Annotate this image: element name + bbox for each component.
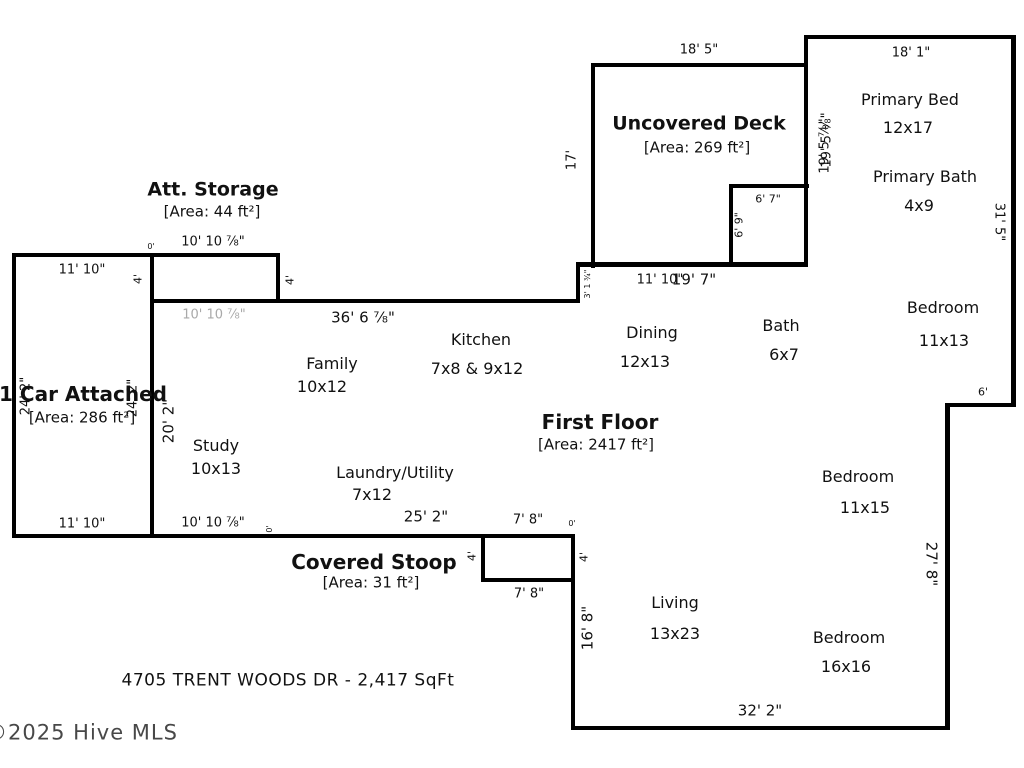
floor-area: [Area: 2417 ft²] [538,438,654,453]
wall-suite-top [804,35,1015,39]
room-primary-bed: Primary Bed [861,92,959,108]
room-bedroom2-size: 11x15 [840,500,890,516]
wall-bottom-left [12,534,575,538]
dim-step-upper: 3' 1 ¾" [584,270,592,299]
wall-deck-left [591,63,595,268]
dim-stoop-span: 25' 2" [404,510,448,525]
dim-zero-storage: 0' [147,243,154,251]
dim-main-top: 36' 6 ⅞" [331,311,395,326]
dim-under-deck-b: 19' 7" [672,273,716,288]
room-bedroom3: Bedroom [813,630,885,646]
room-bedroom2: Bedroom [822,469,894,485]
floor-title: First Floor [542,412,659,432]
wall-storage-top [150,253,280,257]
room-laundry-size: 7x12 [352,487,392,503]
deck-area: [Area: 269 ft²] [644,141,750,156]
room-family-size: 10x12 [297,379,347,395]
floor-plan: Uncovered Deck [Area: 269 ft²] Att. Stor… [0,0,1024,768]
wall-garage-top [12,253,156,257]
dim-storage-top: 10' 10 ⅞" [181,236,245,249]
dim-storage-bottom: 10' 10 ⅞" [182,309,246,322]
dim-stoop-hr: 4' [579,552,590,562]
dim-right-upper: 31' 5" [993,203,1006,242]
wall-deck-top [591,63,808,67]
address-line: 4705 TRENT WOODS DR - 2,417 SqFt [122,673,455,690]
room-study-size: 10x13 [191,461,241,477]
dim-deck-left: 17' [566,150,579,170]
dim-stoop-hl: 4' [467,551,478,561]
wall-storage-right [276,253,280,303]
room-living-size: 13x23 [650,626,700,642]
stoop-title: Covered Stoop [291,552,457,572]
room-bedroom3-size: 16x16 [821,659,871,675]
wall-right-lower [945,403,950,730]
room-primary-bath-size: 4x9 [904,198,934,214]
dim-garage-left: 24' 2" [20,377,33,416]
wall-right-upper [1011,35,1016,407]
room-dining-size: 12x13 [620,354,670,370]
dim-zero-bottom: 0' [266,525,274,532]
dim-right-lower: 27' 8" [924,542,939,586]
wall-living-left [571,534,575,730]
room-primary-bath: Primary Bath [873,169,977,185]
room-bedroom1-size: 11x13 [919,333,969,349]
dim-study-bottom: 10' 10 ⅞" [181,517,245,530]
dim-deck-top: 18' 5" [680,44,719,57]
dim-zero-stoop: 0' [568,520,575,528]
dim-stoop-top: 7' 8" [513,514,543,527]
room-laundry: Laundry/Utility [336,465,454,481]
dim-living-left: 16' 8" [581,606,596,650]
wall-step-up [576,262,580,303]
wall-right-step [945,403,1016,407]
dim-garage-top: 11' 10" [59,264,106,277]
dim-right-step: 6' [978,387,988,398]
room-living: Living [651,595,699,611]
dim-storage-hl: 4' [133,274,144,284]
room-bath-size: 6x7 [769,347,799,363]
dim-suite-left-b: 19' 5 ⅛" [821,112,834,167]
dim-stoop-bottom: 7' 8" [514,588,544,601]
dim-suite-top: 18' 1" [892,47,931,60]
garage-area: [Area: 286 ft²] [29,411,135,426]
room-kitchen: Kitchen [451,332,511,348]
storage-title: Att. Storage [147,181,278,200]
room-dining: Dining [626,325,678,341]
stoop-area: [Area: 31 ft²] [323,576,420,591]
dim-study-left: 20' 2" [162,399,177,443]
deck-title: Uncovered Deck [612,115,786,134]
wall-stoop-left [481,534,485,582]
dim-garage-right: 24' 2" [127,379,140,418]
room-study: Study [193,438,239,454]
room-primary-bed-size: 12x17 [883,120,933,136]
room-bedroom1: Bedroom [907,300,979,316]
dim-bottom: 32' 2" [738,704,782,719]
wall-stoop-bottom [481,578,575,582]
wall-main-topleft [150,299,580,303]
room-bath: Bath [762,318,799,334]
room-kitchen-size: 7x8 & 9x12 [431,361,523,377]
dim-garage-bottom: 11' 10" [59,518,106,531]
storage-area: [Area: 44 ft²] [164,205,261,220]
wall-suite-left [804,35,808,267]
wall-deck-bottom [576,262,808,267]
dim-deck-inner-h: 6' 9" [734,212,745,238]
wall-bottom-main [571,726,950,730]
wall-deck-inner-top [729,184,809,188]
room-family: Family [306,356,357,372]
dim-storage-hr: 4' [285,275,296,285]
dim-deck-inner-w: 6' 7" [755,194,781,205]
watermark: ©2025 Hive MLS [0,723,178,744]
